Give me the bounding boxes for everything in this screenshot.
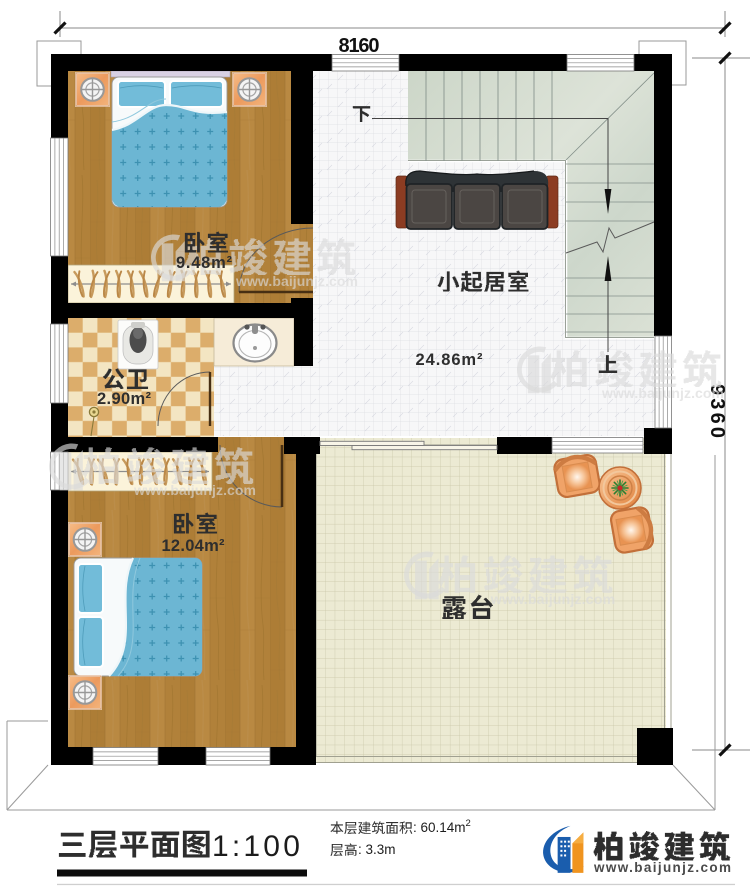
svg-text:www.baijunjz.com: www.baijunjz.com (593, 860, 732, 875)
svg-text:24.86m²: 24.86m² (416, 351, 484, 369)
svg-text:1:100: 1:100 (212, 830, 303, 863)
svg-text:9.48m²: 9.48m² (176, 254, 233, 272)
svg-text:www.baijunjz.com: www.baijunjz.com (490, 592, 617, 608)
svg-text:2: 2 (466, 818, 471, 829)
svg-text:12.04m²: 12.04m² (162, 537, 226, 555)
svg-text:: 3.3m: : 3.3m (358, 842, 396, 857)
svg-text:www.baijunjz.com: www.baijunjz.com (133, 482, 258, 498)
svg-text:2.90m²: 2.90m² (97, 390, 152, 408)
svg-text:www.baijunjz.com: www.baijunjz.com (235, 273, 360, 289)
svg-text:: 60.14m: : 60.14m (413, 820, 466, 835)
svg-text:8160: 8160 (339, 35, 380, 57)
svg-text:www.baijunjz.com: www.baijunjz.com (601, 385, 726, 401)
